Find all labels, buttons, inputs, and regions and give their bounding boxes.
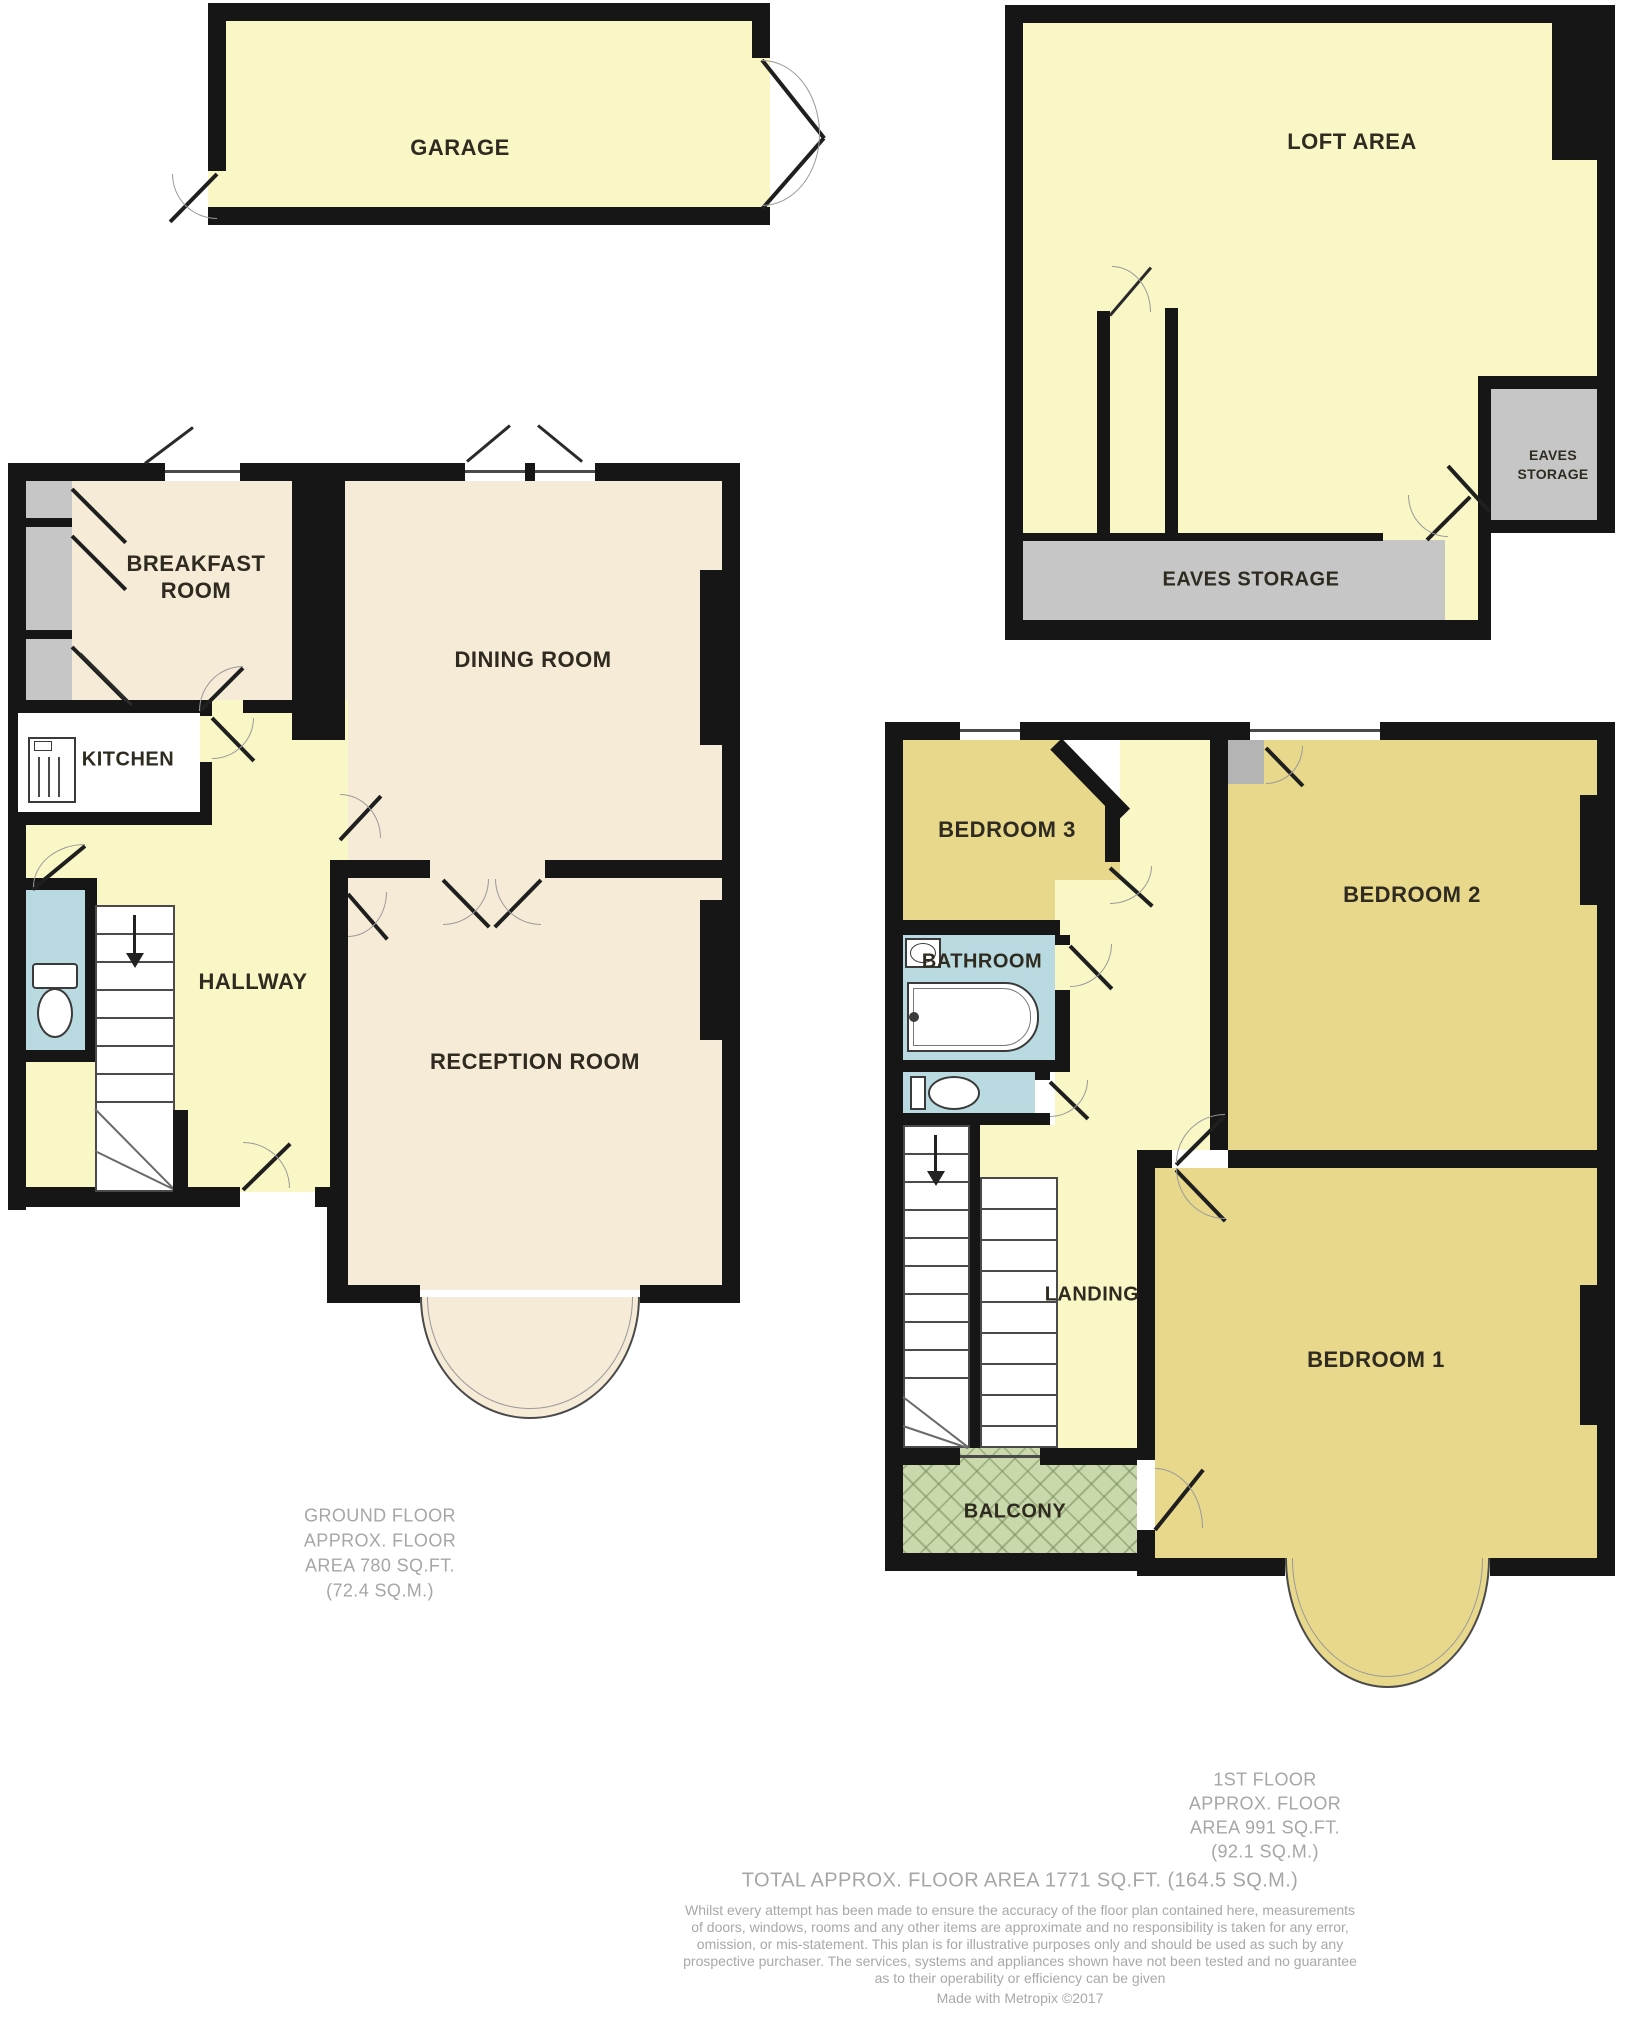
reception-bay-wall-right: [640, 1285, 740, 1303]
loft-chimney-block: [1552, 5, 1615, 160]
kitchen-wall-bottom: [18, 812, 212, 825]
bedroom3-wall-bottom: [885, 920, 1060, 935]
loft-eaves-room-wall-bottom: [1491, 520, 1615, 533]
disclaimer-line: Whilst every attempt has been made to en…: [685, 1902, 1355, 1918]
breakfast-label: ROOM: [161, 578, 231, 604]
kitchen-sink-icon: [38, 757, 40, 797]
bedroom2-chimney: [1228, 740, 1264, 784]
ff-caption: (92.1 SQ.M.): [1211, 1842, 1319, 1863]
ff-stairs-right-treads: [982, 1179, 1056, 1447]
open-window-mark: [144, 426, 194, 464]
ff-stairs-right: [980, 1177, 1058, 1448]
balcony-wall-bottom: [885, 1553, 1137, 1571]
dining-reception-wall: [330, 860, 430, 878]
dining-label: DINING ROOM: [454, 647, 611, 673]
gf-window-block-reception: [700, 900, 740, 1040]
ff-stairs-arrow-shaft: [934, 1135, 937, 1173]
gf-column-wall: [292, 463, 345, 740]
disclaimer-line: as to their operability or efficiency ca…: [875, 1970, 1166, 1986]
total-area-line: TOTAL APPROX. FLOOR AREA 1771 SQ.FT. (16…: [742, 1870, 1298, 1893]
garage-wall-right: [752, 3, 770, 58]
kitchen-label: KITCHEN: [82, 749, 174, 772]
gf-caption: AREA 780 SQ.FT.: [305, 1556, 455, 1577]
reception-label: RECEPTION ROOM: [430, 1049, 640, 1075]
bathroom-label: BATHROOM: [922, 951, 1042, 974]
bedroom3-label: BEDROOM 3: [938, 817, 1076, 843]
disclaimer-line: omission, or mis-statement. This plan is…: [697, 1936, 1343, 1952]
ff-wall-left: [885, 722, 903, 1567]
bedroom2-wall-bottom: [1228, 1150, 1615, 1168]
garage-wall-left: [208, 3, 226, 171]
dining-reception-wall: [545, 860, 740, 878]
balcony-door-line: [960, 1455, 1040, 1458]
bedroom2-wall-bottom: [1137, 1150, 1172, 1168]
ff-wall-top: [1020, 722, 1250, 740]
gf-stairs-arrow-head: [126, 953, 144, 968]
breakfast-label: BREAKFAST: [127, 551, 266, 577]
bedroom1-wall-bottom: [1490, 1558, 1615, 1576]
cupboard-cells: [26, 481, 72, 700]
bedroom2-room: [1228, 740, 1597, 1150]
open-window-mark: [466, 424, 511, 462]
loft-hatch-wall: [1097, 311, 1110, 540]
ff-window-block-bedroom2: [1580, 795, 1615, 905]
loft-notch-cutout: [1491, 533, 1627, 640]
loft-wall-bottom: [1005, 620, 1491, 640]
loft-wall-top: [1005, 5, 1615, 23]
gf-window-block-dining: [700, 570, 740, 745]
reception-bay-window-line: [427, 1297, 633, 1409]
kitchen-wall-top: [18, 700, 212, 713]
eaves-storage-small-label: STORAGE: [1517, 466, 1588, 482]
landing-label: LANDING: [1045, 1284, 1140, 1307]
toilet-icon: [37, 988, 73, 1038]
balcony-wall-top: [1040, 1448, 1137, 1465]
gf-wall-top: [525, 463, 535, 481]
wc-wall-bottom: [26, 1050, 97, 1062]
bedroom1-bay-window-line: [1292, 1558, 1483, 1677]
reception-l-wall-h: [327, 1285, 420, 1303]
loft-hatch-wall: [1165, 308, 1178, 540]
window-line: [960, 729, 1020, 732]
bathroom-divider-wall: [903, 1060, 1055, 1072]
toilet-icon: [32, 963, 78, 989]
toilet-icon: [910, 1076, 926, 1110]
ff-caption: AREA 991 SQ.FT.: [1190, 1818, 1340, 1839]
cupboard-divider: [26, 518, 72, 527]
loft-strip-wall: [1023, 533, 1383, 541]
bedroom2-label: BEDROOM 2: [1343, 882, 1481, 908]
floorplan-canvas: GARAGE LOFT AREA EAVES STORAGE EAVES STO…: [0, 0, 1627, 2025]
gf-breakfast-stub-wall: [243, 700, 292, 713]
garage-label: GARAGE: [410, 135, 510, 161]
bathroom-wall-bottom: [885, 1113, 1050, 1125]
dining-opening-floor: [430, 860, 545, 878]
ff-stairs-arrow-head: [927, 1171, 945, 1186]
garage-wall-top: [208, 3, 770, 21]
gf-caption: APPROX. FLOOR: [304, 1531, 456, 1552]
loft-step-wall: [1478, 520, 1491, 640]
gf-caption: (72.4 SQ.M.): [326, 1581, 434, 1602]
balcony-wall-top: [893, 1448, 960, 1465]
window-line: [165, 470, 240, 473]
gf-stairs-arrow-shaft: [133, 915, 136, 955]
toilet-icon: [928, 1076, 980, 1110]
hall-reception-wall: [330, 878, 348, 1192]
garage-wall-bottom: [208, 207, 770, 225]
bathroom-wall-right: [1055, 935, 1070, 945]
gf-wall-top: [595, 463, 740, 481]
loft-label: LOFT AREA: [1287, 129, 1417, 155]
gf-wall-left: [8, 463, 26, 1210]
gf-stairs-wall: [173, 1110, 188, 1192]
ff-caption: 1ST FLOOR: [1213, 1770, 1316, 1791]
bathroom-wall-right: [1055, 990, 1070, 1072]
ff-wall-top: [1380, 722, 1615, 740]
hallway-label: HALLWAY: [198, 969, 307, 995]
garage-room: [208, 3, 770, 225]
metropix-credit: Made with Metropix ©2017: [937, 1990, 1104, 2006]
garage-double-door-arc: [762, 134, 820, 206]
balcony-label: BALCONY: [964, 1501, 1066, 1524]
garage-double-door-arc: [762, 60, 820, 134]
eaves-storage-small-label: EAVES: [1529, 447, 1577, 463]
kitchen-tap-icon: [34, 741, 52, 751]
bathtub-icon: [913, 988, 1031, 1046]
ff-window-block-bedroom1: [1580, 1285, 1615, 1425]
bedroom1-wall-bottom: [1137, 1558, 1285, 1576]
disclaimer-line: of doors, windows, rooms and any other i…: [691, 1919, 1349, 1935]
loft-wall-left: [1005, 5, 1023, 640]
eaves-storage-label: EAVES STORAGE: [1163, 569, 1340, 592]
cupboard-divider: [26, 630, 72, 639]
reception-room: [348, 878, 722, 1290]
gf-caption: GROUND FLOOR: [304, 1506, 456, 1527]
open-window-mark: [537, 424, 583, 462]
window-line: [465, 470, 525, 473]
bedroom3-wall-right: [1105, 798, 1120, 862]
window-line: [1250, 729, 1380, 732]
wc1-wall-stub: [1035, 1072, 1050, 1080]
reception-l-wall-v: [327, 1192, 348, 1290]
window-line: [535, 470, 595, 473]
landing-room: [978, 1125, 1060, 1177]
kitchen-sink-icon: [58, 757, 60, 797]
gf-wall-top: [240, 463, 465, 481]
ff-stairs-divider: [970, 1125, 980, 1448]
gf-wall-top: [8, 463, 165, 481]
disclaimer-line: prospective purchaser. The services, sys…: [683, 1953, 1357, 1969]
bath-tap-icon: [909, 1012, 919, 1022]
kitchen-sink-icon: [48, 757, 50, 797]
ff-caption: APPROX. FLOOR: [1189, 1794, 1341, 1815]
bedroom1-label: BEDROOM 1: [1307, 1347, 1445, 1373]
loft-eaves-room-wall-top: [1478, 376, 1615, 389]
bedroom1-wall-left: [1137, 1168, 1155, 1460]
bedroom2-wall-left: [1210, 740, 1228, 1150]
